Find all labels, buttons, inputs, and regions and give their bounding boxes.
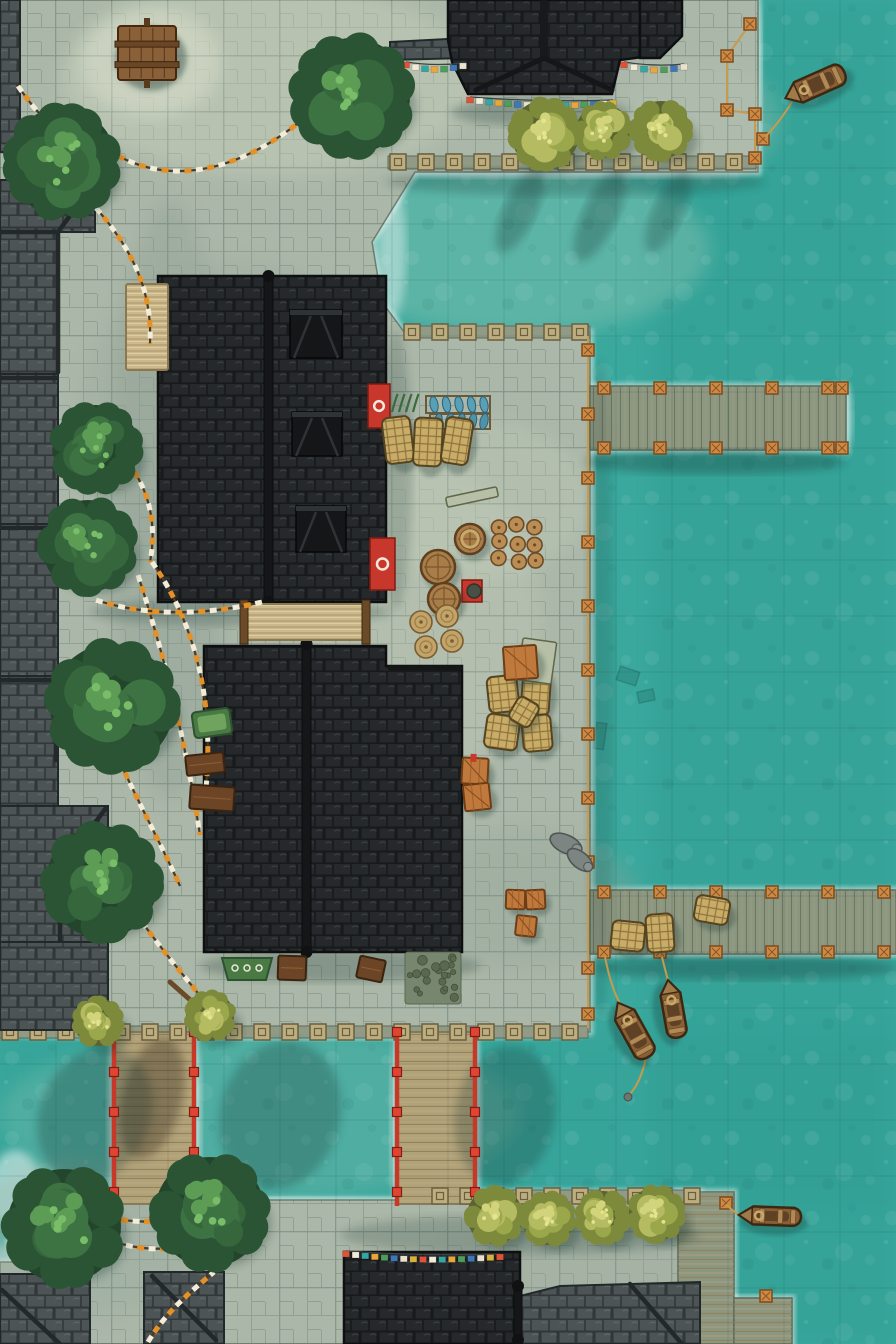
roof-ridge	[302, 640, 311, 956]
boat-seat	[778, 1209, 783, 1223]
stone-post	[726, 154, 742, 170]
red-noren-banner	[370, 538, 395, 590]
flag	[631, 64, 638, 70]
stone-post	[506, 1024, 522, 1040]
mooring-post	[878, 886, 890, 898]
flag	[371, 1254, 378, 1260]
flag	[400, 1256, 407, 1262]
mooring-post	[766, 886, 778, 898]
flag	[477, 1255, 484, 1261]
stone-post	[572, 324, 588, 340]
pier-planks	[734, 1298, 792, 1344]
stone-post	[338, 1024, 354, 1040]
flag	[391, 1255, 398, 1261]
mooring-post	[654, 442, 666, 454]
mooring-post	[822, 442, 834, 454]
mooring-post	[836, 382, 848, 394]
thatch-awning	[126, 284, 168, 370]
flag	[486, 99, 493, 105]
roof-ridge	[264, 272, 273, 606]
gray-tiled-roof	[0, 374, 58, 524]
flag	[439, 1257, 446, 1263]
wooden-cart	[115, 18, 187, 90]
mooring-post	[710, 442, 722, 454]
flag	[362, 1253, 369, 1259]
stone-post	[698, 154, 714, 170]
flag	[671, 66, 678, 72]
flag	[621, 62, 628, 68]
mooring-post	[766, 382, 778, 394]
flag	[343, 1251, 350, 1257]
mooring-post	[582, 600, 594, 612]
mooring-post	[710, 946, 722, 958]
red-rail-post	[110, 1148, 119, 1157]
flag	[651, 67, 658, 73]
flag	[460, 63, 467, 69]
pier-planks	[590, 386, 846, 450]
stone-post	[254, 1024, 270, 1040]
flag	[412, 64, 419, 70]
mooring-post	[598, 442, 610, 454]
red-rail-post	[393, 1028, 402, 1037]
mooring-post	[822, 946, 834, 958]
tree	[288, 32, 416, 160]
thatch-awning	[240, 600, 370, 644]
stone-post	[418, 154, 434, 170]
stone-post	[474, 154, 490, 170]
red-rail-post	[110, 1108, 119, 1117]
stone-post	[502, 154, 518, 170]
stone-post	[422, 1024, 438, 1040]
flag	[422, 66, 429, 72]
mooring-post	[749, 108, 761, 120]
red-rail-post	[471, 1148, 480, 1157]
stone-post	[684, 1188, 700, 1204]
stone-post	[478, 1024, 494, 1040]
stone-post	[450, 1024, 466, 1040]
boat-seat	[790, 1210, 795, 1224]
dark-tiled-roof	[344, 1252, 520, 1344]
red-tag	[470, 754, 476, 762]
ridge-pole	[540, 0, 548, 60]
mooring-post	[721, 104, 733, 116]
flag	[487, 1255, 494, 1261]
submerged-debris	[637, 689, 655, 703]
cast-shadow	[586, 360, 614, 1020]
roof-dormer	[292, 412, 342, 456]
red-rail-post	[471, 1068, 480, 1077]
mooring-post	[582, 792, 594, 804]
mooring-post	[760, 1290, 772, 1302]
mooring-post	[582, 536, 594, 548]
flag	[429, 1257, 436, 1263]
flag	[661, 67, 668, 73]
pole-bundle	[491, 517, 543, 569]
flag	[420, 1257, 427, 1263]
red-rail-post	[393, 1188, 402, 1197]
mooring-post	[598, 382, 610, 394]
mooring-post	[654, 886, 666, 898]
red-rail-post	[393, 1108, 402, 1117]
stone-post	[544, 324, 560, 340]
red-rail-post	[471, 1028, 480, 1037]
mooring-post	[878, 946, 890, 958]
mooring-post	[766, 442, 778, 454]
stone-post	[310, 1024, 326, 1040]
red-rail-post	[471, 1108, 480, 1117]
mooring-post	[710, 382, 722, 394]
stone-post	[516, 324, 532, 340]
flag	[381, 1255, 388, 1261]
mooring-post	[582, 1008, 594, 1020]
stone-post	[142, 1024, 158, 1040]
red-rail-post	[393, 1068, 402, 1077]
flag	[641, 66, 648, 72]
flag	[441, 66, 448, 72]
wooden-dish	[436, 605, 458, 627]
mooring-post	[766, 946, 778, 958]
ridge-cap	[512, 1280, 524, 1292]
stone-post	[390, 154, 406, 170]
mooring-post	[582, 962, 594, 974]
flag	[468, 1256, 475, 1262]
flag	[495, 100, 502, 106]
flag	[505, 101, 512, 107]
red-rail-post	[393, 1148, 402, 1157]
flag	[448, 1256, 455, 1262]
mooring-post	[822, 886, 834, 898]
stone-post	[562, 1024, 578, 1040]
mooring-post	[582, 728, 594, 740]
stone-post	[404, 324, 420, 340]
mooring-post	[582, 472, 594, 484]
wooden-dish	[441, 630, 463, 652]
flag	[571, 102, 578, 108]
stone-post	[170, 1024, 186, 1040]
flag	[514, 101, 521, 107]
mooring-post	[744, 18, 756, 30]
stone-post	[432, 1188, 448, 1204]
stone-post	[446, 154, 462, 170]
wooden-dish	[415, 636, 437, 658]
red-rail-post	[190, 1108, 199, 1117]
mooring-post	[721, 50, 733, 62]
roof-dormer	[296, 506, 346, 552]
red-rail-post	[110, 1068, 119, 1077]
green-mat	[222, 958, 272, 980]
flag	[458, 1256, 465, 1262]
pebble-garden	[405, 952, 461, 1004]
flag	[681, 64, 688, 70]
flag	[410, 1256, 417, 1262]
dark-tiled-roof	[204, 646, 462, 952]
mooring-post	[822, 382, 834, 394]
mooring-post	[598, 886, 610, 898]
wooden-dish	[410, 611, 432, 633]
wooden-table	[185, 752, 225, 776]
mooring-post	[749, 152, 761, 164]
anchor-weight	[624, 1093, 632, 1101]
mooring-post	[598, 946, 610, 958]
ridge-cap	[263, 270, 275, 282]
mooring-post	[582, 344, 594, 356]
flag	[450, 65, 457, 71]
stone-post	[460, 324, 476, 340]
stone-post	[282, 1024, 298, 1040]
mooring-post	[582, 664, 594, 676]
cast-shadow	[385, 168, 765, 196]
flag	[476, 98, 483, 104]
stone-post	[366, 1024, 382, 1040]
mooring-post	[654, 382, 666, 394]
mooring-post	[836, 442, 848, 454]
flag	[352, 1252, 359, 1258]
wooden-table	[278, 956, 307, 981]
green-mat	[191, 707, 232, 738]
stone-post	[488, 324, 504, 340]
stone-post	[432, 324, 448, 340]
roof-dormer	[290, 310, 342, 358]
flag	[467, 97, 474, 103]
mooring-post	[582, 408, 594, 420]
cast-shadow	[593, 956, 896, 980]
wooden-table	[189, 784, 235, 811]
battlemap-viewport	[0, 0, 896, 1344]
harbor-battlemap	[0, 0, 896, 1344]
flag	[431, 67, 438, 73]
red-rail-post	[190, 1068, 199, 1077]
wooden-table	[356, 956, 386, 983]
clay-pot	[467, 584, 481, 598]
flag	[497, 1254, 504, 1260]
stone-post	[534, 1024, 550, 1040]
